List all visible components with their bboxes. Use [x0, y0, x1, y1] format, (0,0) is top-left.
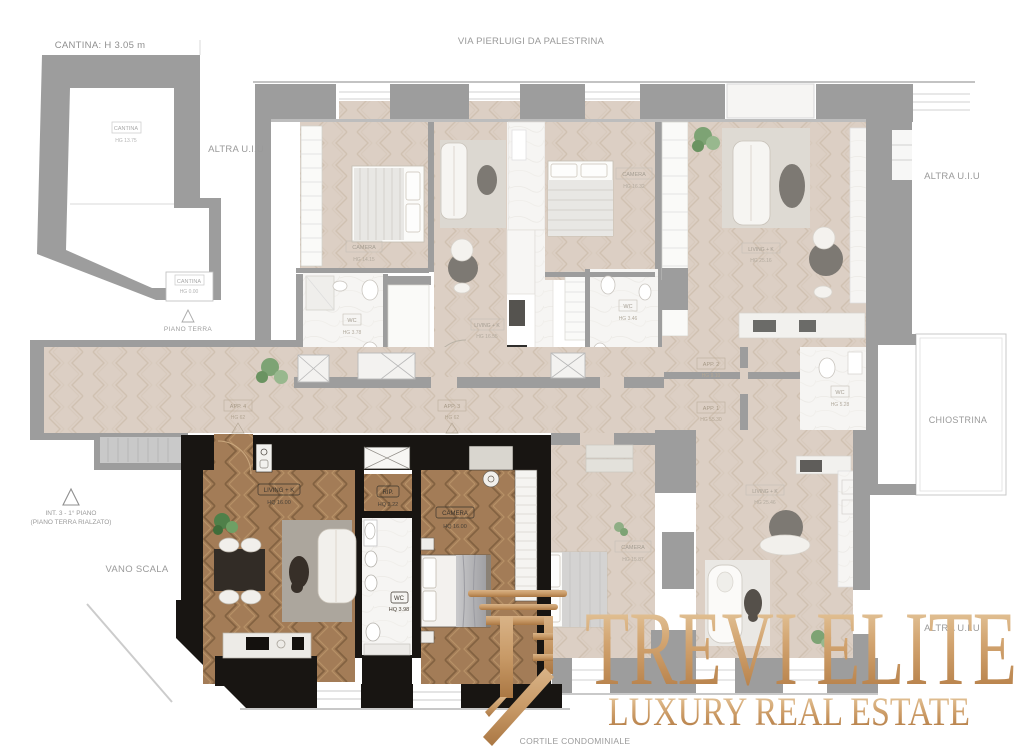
svg-text:LIVING + K: LIVING + K: [474, 323, 500, 329]
svg-text:CHIOSTRINA: CHIOSTRINA: [929, 415, 988, 425]
svg-text:HG 16.55: HG 16.55: [476, 334, 498, 340]
svg-text:ALTRA U.I.U: ALTRA U.I.U: [208, 144, 264, 155]
svg-text:LIVING + K: LIVING + K: [748, 247, 774, 253]
svg-text:HQ 16.00: HQ 16.00: [267, 500, 291, 506]
svg-text:HG 25.16: HG 25.16: [750, 258, 772, 264]
svg-text:VIA PIERLUIGI DA PALESTRINA: VIA PIERLUIGI DA PALESTRINA: [458, 36, 605, 47]
svg-text:HG 15.87: HG 15.87: [622, 557, 644, 563]
svg-text:VANO SCALA: VANO SCALA: [105, 564, 168, 575]
svg-text:APP. 1: APP. 1: [703, 406, 719, 412]
svg-text:HG 14.15: HG 14.15: [353, 257, 375, 263]
svg-text:WC: WC: [394, 596, 405, 602]
svg-text:CAMERA: CAMERA: [442, 511, 468, 517]
svg-text:CANTINA: CANTINA: [177, 279, 201, 285]
svg-text:HQ 2.22: HQ 2.22: [378, 502, 398, 508]
svg-text:CAMERA: CAMERA: [352, 245, 376, 251]
svg-text:HG 25.46: HG 25.46: [754, 500, 776, 506]
svg-text:HG 3.46: HG 3.46: [619, 316, 638, 322]
svg-text:HG 16.32: HG 16.32: [623, 184, 645, 190]
svg-text:WC: WC: [347, 318, 356, 324]
svg-text:CAMERA: CAMERA: [621, 545, 645, 551]
svg-text:RIP.: RIP.: [383, 490, 394, 496]
svg-text:ALTRA U.I.U: ALTRA U.I.U: [924, 171, 980, 182]
svg-text:INT. 3 - 1° PIANO: INT. 3 - 1° PIANO: [45, 509, 96, 517]
svg-text:CANTINA: CANTINA: [114, 126, 138, 132]
svg-text:APP. 4: APP. 4: [230, 404, 246, 410]
svg-text:PIANO TERRA: PIANO TERRA: [164, 326, 213, 333]
svg-text:WC: WC: [623, 304, 632, 310]
svg-text:LUXURY REAL ESTATE: LUXURY REAL ESTATE: [608, 689, 970, 734]
svg-text:CANTINA: H 3.05 m: CANTINA: H 3.05 m: [55, 40, 146, 51]
svg-text:APP. 2: APP. 2: [703, 362, 719, 368]
svg-text:APP. 3: APP. 3: [444, 404, 460, 410]
svg-text:HG 55.30: HG 55.30: [700, 417, 722, 423]
svg-text:HG 9.10: HG 9.10: [702, 373, 721, 379]
svg-text:CORTILE CONDOMINIALE: CORTILE CONDOMINIALE: [520, 736, 631, 746]
svg-text:(PIANO TERRA RIALZATO): (PIANO TERRA RIALZATO): [31, 519, 112, 526]
svg-text:HG 62: HG 62: [445, 415, 460, 421]
svg-text:HG 62: HG 62: [231, 415, 246, 421]
svg-text:HQ 16.00: HQ 16.00: [443, 524, 467, 530]
svg-text:HG 13.75: HG 13.75: [115, 138, 137, 144]
svg-text:HG 3.78: HG 3.78: [343, 330, 362, 336]
svg-text:HG 0.00: HG 0.00: [180, 289, 199, 295]
svg-text:CAMERA: CAMERA: [622, 172, 646, 178]
svg-text:LIVING + K: LIVING + K: [264, 488, 295, 494]
svg-text:WC: WC: [835, 390, 844, 396]
svg-text:HQ 3.98: HQ 3.98: [389, 607, 409, 613]
svg-text:HG 5.28: HG 5.28: [831, 402, 850, 408]
svg-text:LIVING + K: LIVING + K: [752, 489, 778, 495]
